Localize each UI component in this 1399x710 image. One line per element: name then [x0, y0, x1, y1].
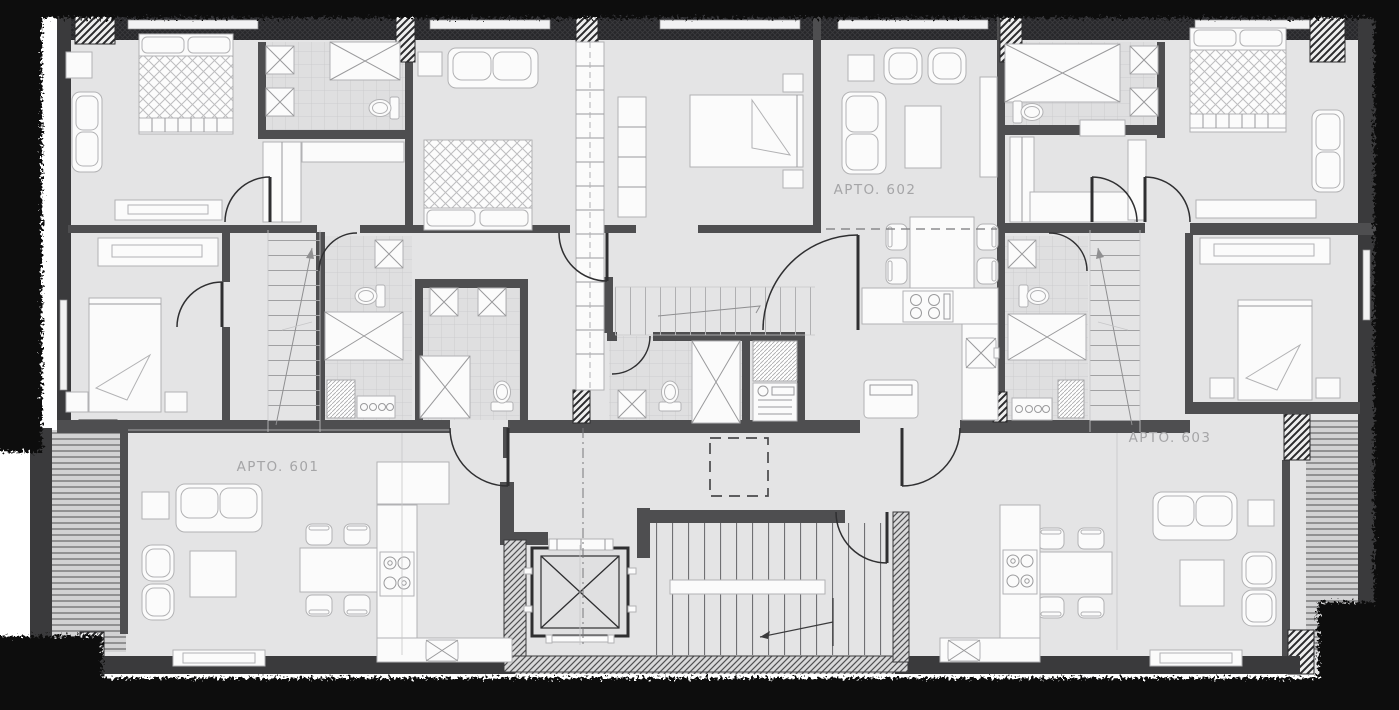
label-apt-602: APTO. 602: [834, 182, 917, 198]
armchair-icon: [1242, 552, 1276, 588]
sofa-icon: [842, 92, 886, 174]
dresser-icon: [115, 200, 222, 220]
bed-icon: [89, 298, 161, 412]
stair-icon: [268, 230, 320, 432]
bed-icon: [139, 34, 233, 134]
armchair-icon: [1312, 110, 1344, 192]
sink-icon: [266, 88, 294, 116]
sink-icon: [478, 288, 506, 316]
coffee-table-icon: [1180, 560, 1224, 606]
sofa-icon: [1153, 492, 1237, 540]
sink-icon: [426, 640, 458, 661]
sofa-icon: [176, 484, 262, 532]
washer-icon: [1058, 380, 1084, 418]
desk-icon: [1200, 238, 1330, 264]
sink-icon: [1008, 240, 1036, 268]
stove-icon: [1003, 550, 1037, 594]
fridge-icon: [864, 380, 918, 418]
sink-icon: [966, 338, 999, 368]
stair-center: [615, 287, 815, 335]
stove-icon: [380, 552, 414, 596]
desk-icon: [98, 238, 218, 266]
stair-main: [656, 523, 884, 655]
stove-icon: [1012, 398, 1052, 420]
tv-cabinet-icon: [980, 77, 997, 177]
sink-icon: [948, 640, 980, 661]
bed-icon: [1190, 28, 1286, 132]
armchair-icon: [142, 584, 174, 620]
bed-icon: [1238, 300, 1312, 400]
coffee-table-icon: [190, 551, 236, 597]
stair-icon: [1090, 230, 1140, 432]
laundry: [753, 341, 797, 421]
sink-icon: [618, 390, 646, 418]
sink-icon: [1130, 46, 1158, 74]
label-apt-601: APTO. 601: [237, 459, 320, 475]
stair-icon: [615, 287, 815, 335]
tv-cabinet-icon: [173, 650, 265, 666]
stair-right: [1090, 230, 1140, 432]
label-apt-603: APTO. 603: [1129, 430, 1212, 446]
stove-icon: [903, 291, 953, 322]
sink-icon: [375, 240, 403, 268]
elevator: [524, 539, 636, 645]
coffee-table-icon: [905, 106, 941, 168]
sink-icon: [1130, 88, 1158, 116]
column-hatch-icon: [1284, 414, 1310, 460]
armchair-icon: [142, 545, 174, 581]
washer-icon: [327, 380, 355, 418]
stove-icon: [357, 396, 395, 418]
stair-left: [268, 230, 320, 432]
bed-icon: [424, 140, 532, 230]
washer-icon: [753, 383, 797, 421]
deck-boards-icon: [52, 430, 126, 652]
floor-plan-page: APTO. 601 APTO. 602 APTO. 603: [0, 0, 1399, 710]
bed-icon: [690, 95, 803, 167]
sink-icon: [430, 288, 458, 316]
dresser-icon: [1196, 200, 1316, 218]
sink-icon: [266, 46, 294, 74]
tv-cabinet-icon: [1150, 650, 1242, 666]
armchair-icon: [1242, 590, 1276, 626]
floor-plan-drawing: APTO. 601 APTO. 602 APTO. 603: [0, 0, 1399, 710]
